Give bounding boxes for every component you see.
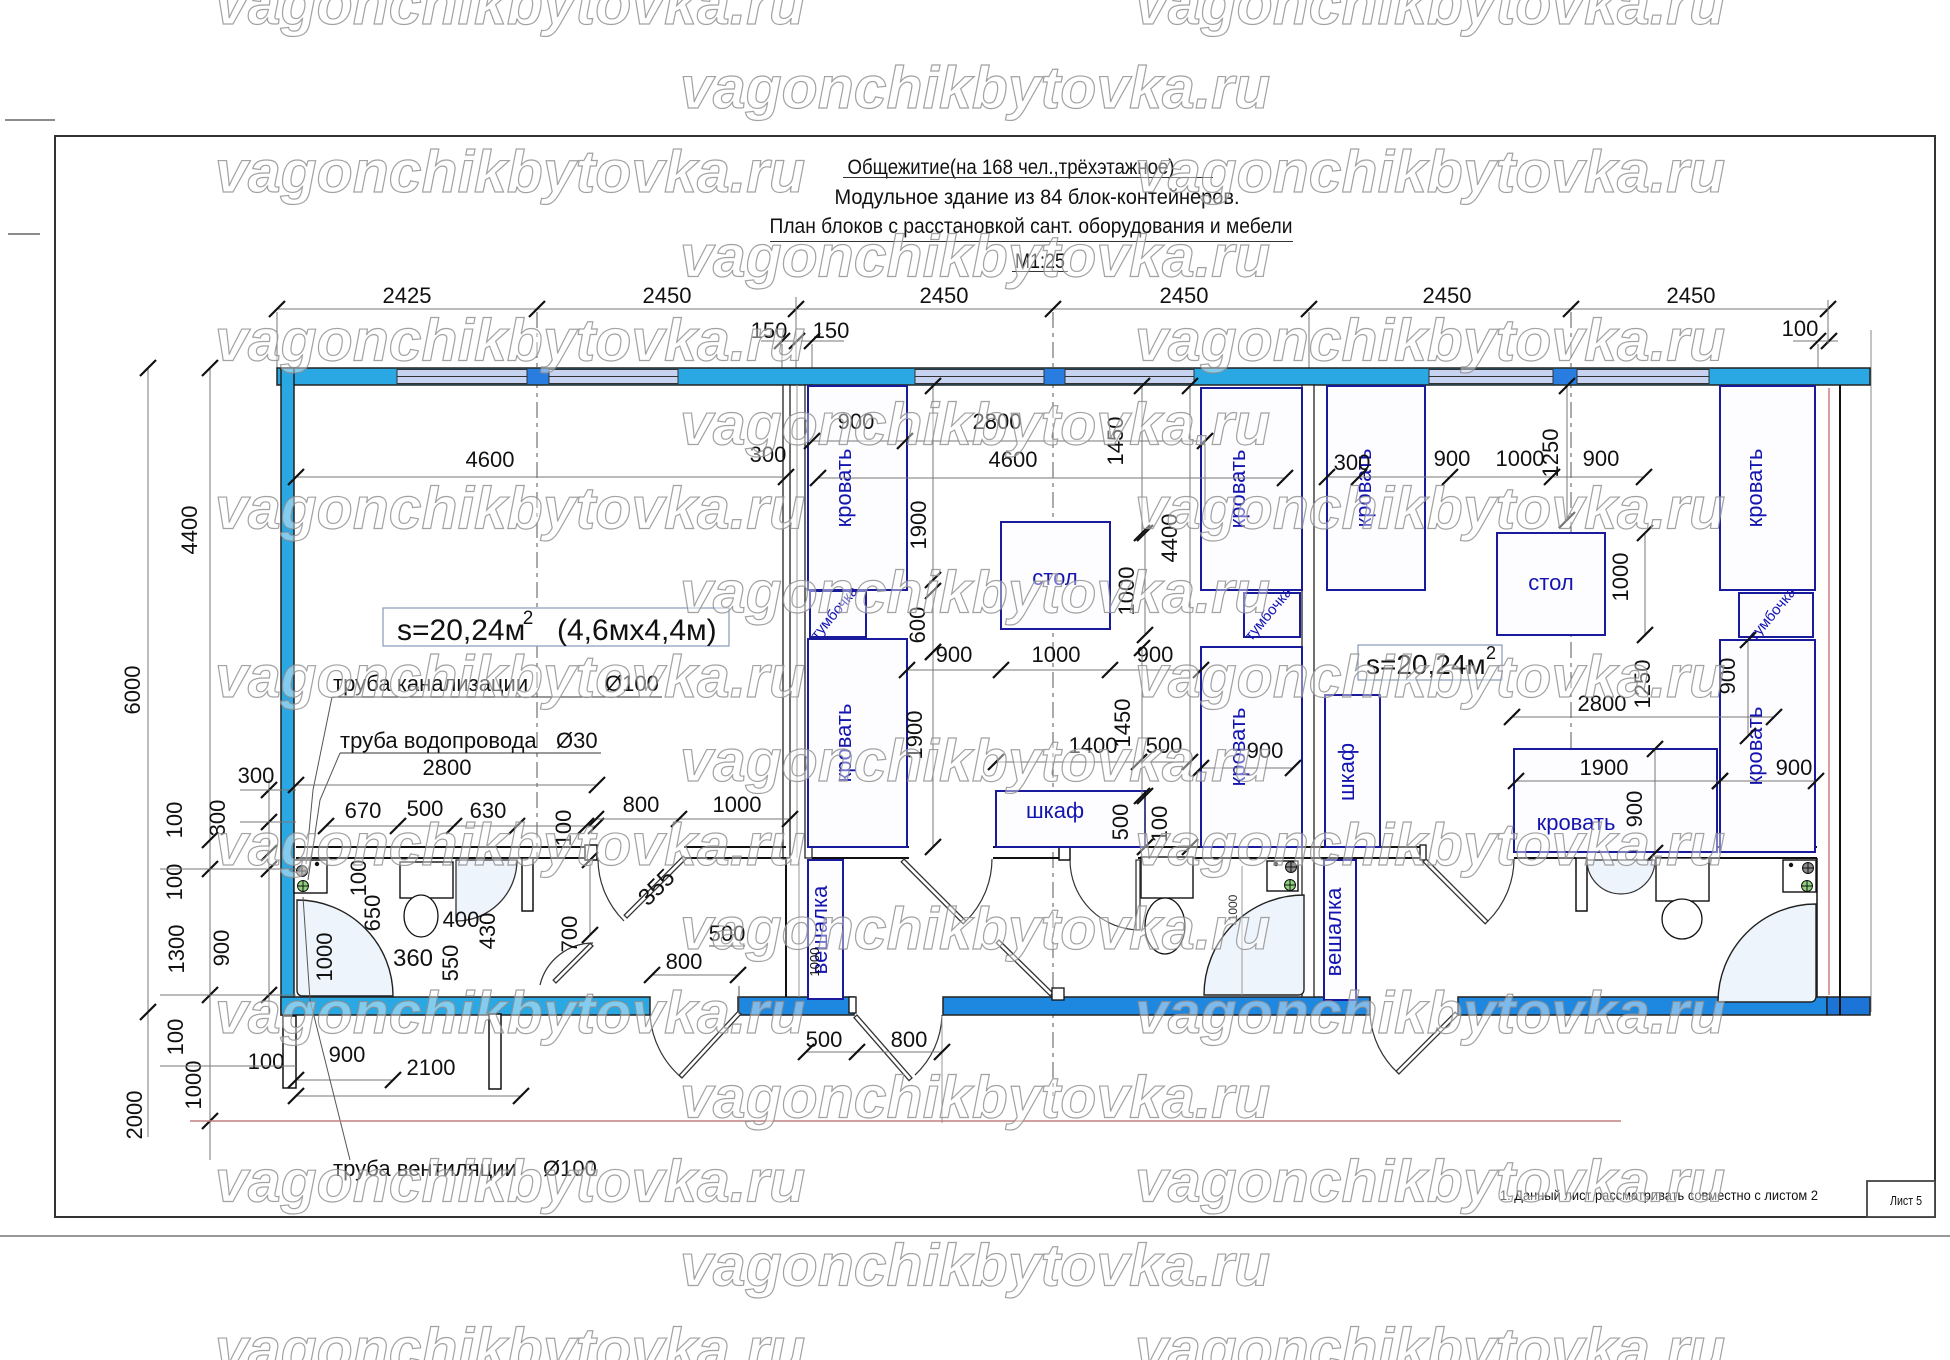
- svg-text:1250: 1250: [1538, 429, 1563, 478]
- svg-text:кровать: кровать: [1742, 707, 1767, 786]
- svg-text:100: 100: [1782, 316, 1819, 341]
- svg-text:6000: 6000: [120, 666, 145, 715]
- svg-text:vagonchikbytovka.ru: vagonchikbytovka.ru: [215, 0, 805, 37]
- svg-text:vagonchikbytovka.ru: vagonchikbytovka.ru: [680, 560, 1270, 626]
- svg-text:900: 900: [936, 642, 973, 667]
- svg-text:360: 360: [393, 945, 433, 972]
- svg-text:vagonchikbytovka.ru: vagonchikbytovka.ru: [215, 476, 805, 542]
- svg-text:430: 430: [475, 913, 500, 950]
- svg-text:2: 2: [523, 608, 534, 629]
- svg-text:2800: 2800: [423, 755, 472, 780]
- svg-text:500: 500: [1108, 804, 1133, 841]
- svg-text:900: 900: [1776, 755, 1813, 780]
- svg-text:650: 650: [360, 895, 385, 932]
- svg-text:s=20,24м: s=20,24м: [397, 614, 525, 647]
- svg-text:150: 150: [813, 318, 850, 343]
- svg-text:vagonchikbytovka.ru: vagonchikbytovka.ru: [680, 896, 1270, 962]
- svg-text:2450: 2450: [1667, 283, 1716, 308]
- svg-text:100: 100: [248, 1049, 285, 1074]
- svg-text:1000: 1000: [1608, 553, 1633, 602]
- svg-text:500: 500: [806, 1027, 843, 1052]
- svg-text:800: 800: [891, 1027, 928, 1052]
- svg-text:vagonchikbytovka.ru: vagonchikbytovka.ru: [215, 644, 805, 710]
- svg-text:900: 900: [209, 930, 234, 967]
- svg-text:шкаф: шкаф: [1334, 743, 1359, 801]
- svg-text:300: 300: [238, 763, 275, 788]
- svg-text:vagonchikbytovka.ru: vagonchikbytovka.ru: [1135, 644, 1725, 710]
- svg-text:vagonchikbytovka.ru: vagonchikbytovka.ru: [1135, 980, 1725, 1046]
- svg-text:vagonchikbytovka.ru: vagonchikbytovka.ru: [215, 980, 805, 1046]
- svg-text:900: 900: [1583, 446, 1620, 471]
- svg-text:труба водопровода: труба водопровода: [340, 728, 537, 753]
- svg-text:2450: 2450: [1423, 283, 1472, 308]
- svg-text:vagonchikbytovka.ru: vagonchikbytovka.ru: [215, 139, 805, 205]
- svg-text:vagonchikbytovka.ru: vagonchikbytovka.ru: [1135, 0, 1725, 37]
- svg-text:вешалка: вешалка: [1321, 887, 1346, 977]
- svg-text:1900: 1900: [906, 501, 931, 550]
- svg-text:vagonchikbytovka.ru: vagonchikbytovka.ru: [680, 1233, 1270, 1299]
- svg-text:700: 700: [557, 916, 582, 953]
- svg-text:2425: 2425: [383, 283, 432, 308]
- svg-text:vagonchikbytovka.ru: vagonchikbytovka.ru: [1135, 812, 1725, 878]
- svg-text:1000: 1000: [181, 1061, 206, 1110]
- svg-text:400: 400: [443, 907, 480, 932]
- svg-text:100: 100: [163, 1019, 188, 1056]
- svg-text:vagonchikbytovka.ru: vagonchikbytovka.ru: [1135, 139, 1725, 205]
- svg-text:шкаф: шкаф: [1026, 798, 1084, 823]
- svg-text:Лист 5: Лист 5: [1890, 1194, 1922, 1208]
- svg-text:1900: 1900: [1580, 755, 1629, 780]
- svg-text:стол: стол: [1528, 570, 1573, 595]
- svg-text:1300: 1300: [164, 925, 189, 974]
- svg-text:4600: 4600: [466, 447, 515, 472]
- svg-text:300: 300: [1334, 450, 1371, 475]
- svg-text:100: 100: [162, 802, 187, 839]
- svg-text:кровать: кровать: [831, 449, 856, 528]
- svg-text:vagonchikbytovka.ru: vagonchikbytovka.ru: [680, 1064, 1270, 1130]
- svg-text:Общежитие(на 168 чел.,трёхэтаж: Общежитие(на 168 чел.,трёхэтажное): [848, 155, 1175, 179]
- svg-text:vagonchikbytovka.ru: vagonchikbytovka.ru: [680, 392, 1270, 458]
- svg-text:vagonchikbytovka.ru: vagonchikbytovka.ru: [680, 223, 1270, 289]
- svg-text:1000: 1000: [312, 933, 337, 982]
- svg-text:vagonchikbytovka.ru: vagonchikbytovka.ru: [680, 55, 1270, 121]
- svg-text:2000: 2000: [122, 1091, 147, 1140]
- svg-text:Ø30: Ø30: [556, 728, 598, 753]
- svg-text:vagonchikbytovka.ru: vagonchikbytovka.ru: [1135, 476, 1725, 542]
- svg-text:4400: 4400: [177, 506, 202, 555]
- svg-text:2100: 2100: [407, 1055, 456, 1080]
- svg-text:550: 550: [438, 945, 463, 982]
- svg-text:900: 900: [1434, 446, 1471, 471]
- svg-text:vagonchikbytovka.ru: vagonchikbytovka.ru: [215, 307, 805, 373]
- svg-text:vagonchikbytovka.ru: vagonchikbytovka.ru: [1135, 1148, 1725, 1214]
- svg-text:vagonchikbytovka.ru: vagonchikbytovka.ru: [215, 1148, 805, 1214]
- svg-text:vagonchikbytovka.ru: vagonchikbytovka.ru: [215, 1317, 805, 1360]
- svg-text:vagonchikbytovka.ru: vagonchikbytovka.ru: [1135, 307, 1725, 373]
- svg-text:vagonchikbytovka.ru: vagonchikbytovka.ru: [215, 812, 805, 878]
- svg-text:1000: 1000: [1032, 642, 1081, 667]
- svg-text:vagonchikbytovka.ru: vagonchikbytovka.ru: [680, 728, 1270, 794]
- svg-text:кровать: кровать: [1742, 449, 1767, 528]
- svg-text:vagonchikbytovka.ru: vagonchikbytovka.ru: [1135, 1317, 1725, 1360]
